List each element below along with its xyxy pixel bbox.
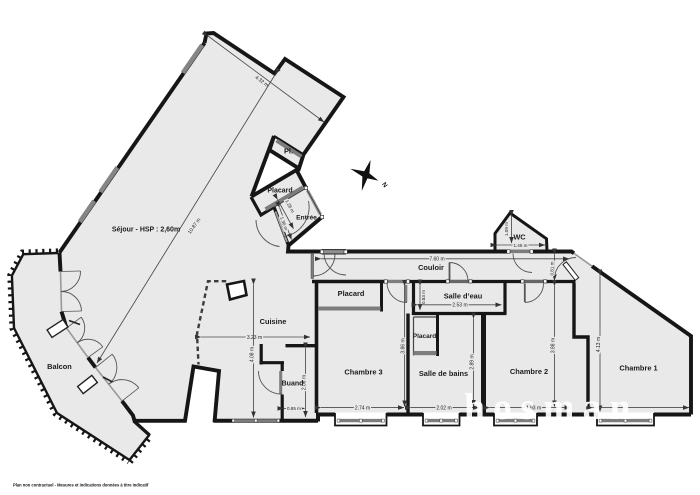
svg-text:Chambre 2: Chambre 2: [510, 367, 548, 376]
svg-text:Salle d’eau: Salle d’eau: [444, 292, 483, 301]
svg-text:0.85 m: 0.85 m: [287, 406, 301, 411]
svg-text:Entrée: Entrée: [296, 214, 317, 221]
svg-text:Placard: Placard: [338, 289, 365, 298]
svg-text:Placard: Placard: [413, 333, 437, 340]
svg-text:1.45 m: 1.45 m: [513, 243, 527, 248]
svg-text:Pl.: Pl.: [284, 147, 293, 156]
svg-text:WC: WC: [513, 233, 526, 242]
svg-text:2.74 m: 2.74 m: [355, 405, 370, 411]
svg-text:3.23 m: 3.23 m: [247, 335, 262, 341]
svg-text:Placard: Placard: [267, 187, 292, 194]
svg-text:2.02 m: 2.02 m: [436, 405, 451, 411]
svg-text:Buand: Buand: [282, 381, 304, 388]
svg-text:1.09 m: 1.09 m: [504, 222, 509, 236]
svg-text:N: N: [380, 181, 389, 189]
svg-text:Balcon: Balcon: [47, 362, 72, 371]
svg-text:0.81 m: 0.81 m: [550, 261, 555, 275]
svg-text:2.53 m: 2.53 m: [452, 303, 467, 309]
svg-text:Cuisine: Cuisine: [260, 317, 287, 326]
svg-text:Chambre 3: Chambre 3: [344, 368, 382, 377]
svg-text:2.89 m: 2.89 m: [470, 354, 476, 369]
svg-text:hosman: hosman: [464, 387, 639, 428]
svg-text:Séjour - HSP : 2,60m: Séjour - HSP : 2,60m: [112, 226, 180, 233]
svg-text:7.60 m: 7.60 m: [429, 257, 444, 263]
svg-text:Plan non contractuel - Mesures: Plan non contractuel - Mesures et indica…: [13, 483, 149, 488]
svg-text:Salle de bains: Salle de bains: [419, 369, 468, 378]
svg-text:4.13 m: 4.13 m: [596, 337, 602, 352]
svg-text:4.08 m: 4.08 m: [250, 347, 256, 362]
svg-text:3.86 m: 3.86 m: [401, 338, 407, 353]
svg-text:3.88 m: 3.88 m: [551, 338, 557, 353]
svg-text:Couloir: Couloir: [418, 263, 444, 272]
svg-text:0.83 m: 0.83 m: [421, 290, 426, 304]
svg-text:Chambre 1: Chambre 1: [619, 364, 657, 373]
